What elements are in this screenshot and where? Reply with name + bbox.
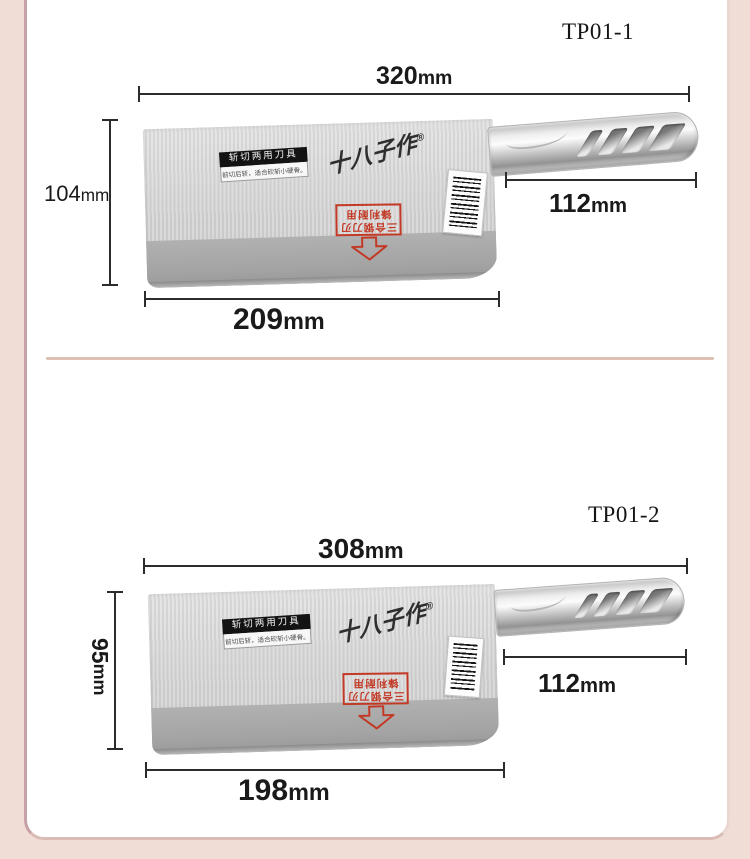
variant-label-tp01-2: TP01-2 <box>588 502 660 528</box>
knife-blade: 斩切两用刀具 前切后斩，适合砍斩小硬骨。 十八子作® 三合钢刀刃 锋利耐用 <box>148 584 500 755</box>
handle-length-dimension-line <box>505 172 697 188</box>
red-stamp: 三合钢刀刃 锋利耐用 <box>335 203 401 236</box>
registered-mark-icon: ® <box>425 601 433 614</box>
barcode-sticker <box>442 169 488 236</box>
handle-neck-line <box>509 587 567 613</box>
dimension-line <box>143 565 688 567</box>
dimension-line <box>503 656 687 658</box>
total-length-value: 308mm <box>318 533 404 565</box>
handle-length-value: 112mm <box>549 188 627 219</box>
dimension-line <box>505 179 697 181</box>
brand-calligraphy: 十八子作® <box>325 122 426 182</box>
stamp-text-line: 锋利耐用 <box>339 206 397 220</box>
total-length-value: 320mm <box>376 62 452 91</box>
blade-tag: 斩切两用刀具 前切后斩，适合砍斩小硬骨。 <box>222 614 312 650</box>
dimension-line <box>145 769 505 771</box>
stamp-text-line: 三合钢刀刃 <box>347 688 405 702</box>
knife-blade: 斩切两用刀具 前切后斩，适合砍斩小硬骨。 十八子作® 三合钢刀刃 锋利耐用 <box>143 119 498 288</box>
variant-label-tp01-1: TP01-1 <box>562 19 634 45</box>
down-arrow-icon <box>358 705 395 730</box>
registered-mark-icon: ® <box>416 132 424 145</box>
blade-tag: 斩切两用刀具 前切后斩，适合砍斩小硬骨。 <box>219 147 309 183</box>
handle-neck-line <box>505 123 569 151</box>
stamp-text-line: 三合钢刀刃 <box>340 219 398 233</box>
barcode-icon <box>450 643 477 691</box>
section-divider <box>46 357 714 360</box>
barcode-icon <box>449 177 481 229</box>
brand-calligraphy: 十八子作® <box>334 590 435 650</box>
blade-length-value: 198mm <box>238 774 330 808</box>
down-arrow-icon <box>351 236 388 261</box>
blade-height-value: 95mm <box>86 638 113 696</box>
handle-length-dimension-line <box>503 649 687 665</box>
red-stamp: 三合钢刀刃 锋利耐用 <box>342 672 408 705</box>
barcode-sticker <box>444 636 484 699</box>
dimension-line <box>138 93 690 95</box>
dimension-line <box>144 298 500 300</box>
total-length-dimension-line <box>143 558 688 574</box>
blade-height-value: 104mm <box>44 181 109 207</box>
blade-length-value: 209mm <box>233 303 325 337</box>
dimension-line <box>114 591 116 750</box>
handle-length-value: 112mm <box>538 668 616 699</box>
stamp-text-line: 锋利耐用 <box>346 675 404 689</box>
